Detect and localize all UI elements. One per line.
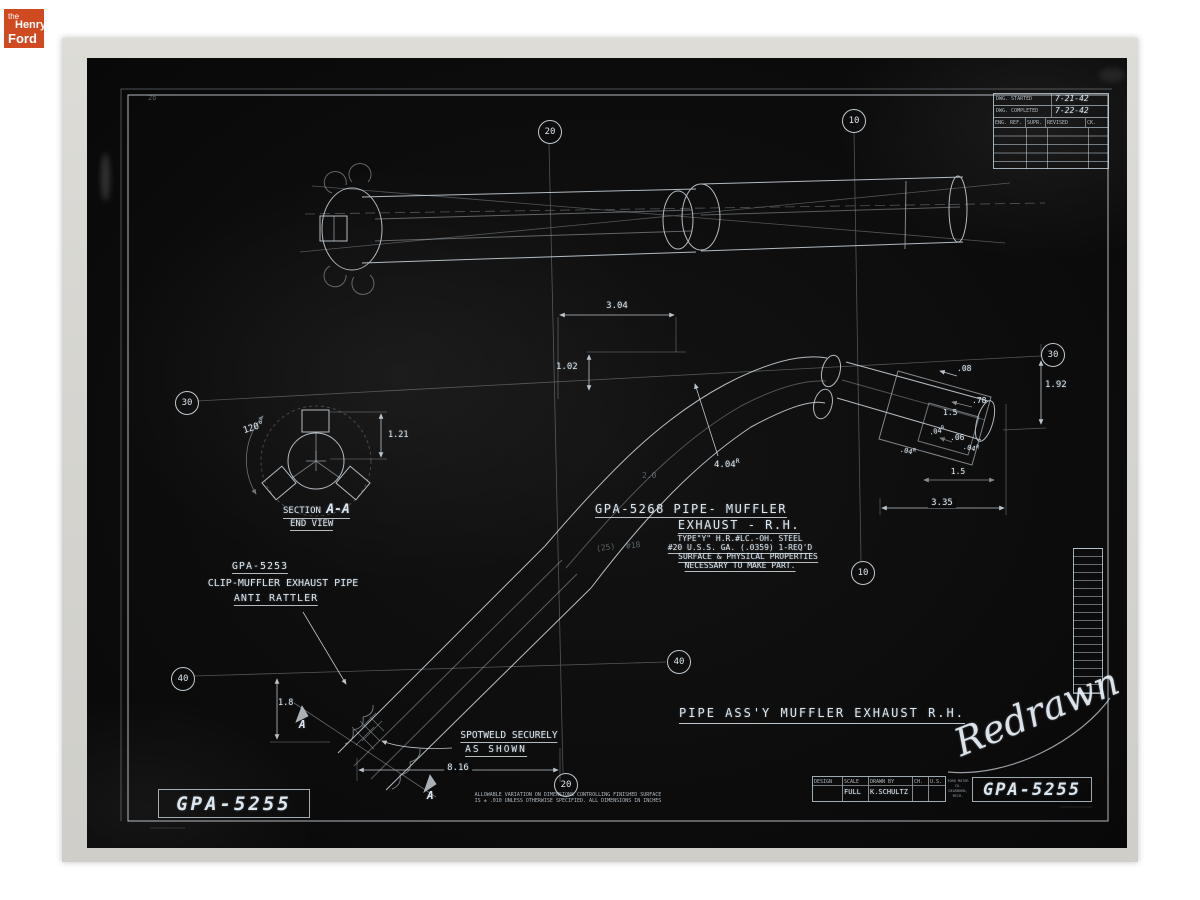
col-revised: REVISED — [1046, 118, 1086, 127]
col-supr: SUPR. — [1026, 118, 1046, 127]
revision-empty-rows — [994, 128, 1108, 169]
dim-8-16: 8.16 — [444, 763, 472, 773]
title-block-part-number: GPA-5255 — [983, 780, 1081, 800]
dim-06: .06 — [950, 433, 964, 442]
part-number-note: GPA-5268 PIPE- MUFFLER — [595, 502, 787, 518]
dwg-started-value: 7-21-42 — [1052, 94, 1108, 105]
grid-ref-40-left: 40 — [171, 667, 195, 691]
dim-1-5b: 1.5 — [951, 467, 965, 476]
end-view-label: END VIEW — [290, 519, 333, 531]
company-stamp: FORD MOTOR CO. DEARBORN, MICH. — [944, 779, 972, 799]
grid-ref-40-mid: 40 — [667, 650, 691, 674]
spec-line4: NECESSARY TO MAKE PART. — [685, 561, 796, 572]
spec-line1: TYPE"Y" H.R.#LC.-OH. STEEL — [677, 534, 802, 543]
dim-1-21: 1.21 — [388, 430, 408, 440]
revision-table: DWG. STARTED 7-21-42 DWG. COMPLETED 7-22… — [993, 93, 1109, 169]
dwg-completed-value: 7-22-42 — [1052, 106, 1108, 117]
clip-note-line2: CLIP-MUFFLER EXHAUST PIPE — [208, 578, 359, 589]
hdr-us: U.S. — [929, 777, 945, 786]
company-line1: FORD MOTOR CO. — [944, 779, 972, 789]
section-marker-a2: A — [427, 789, 434, 802]
val-design — [813, 786, 842, 788]
title-block-part-number-box: GPA-5255 — [972, 777, 1092, 802]
corner-pencil-mark: 2b — [148, 94, 156, 102]
dwg-started-label: DWG. STARTED — [994, 94, 1052, 105]
spotweld-line2: AS SHOWN — [465, 744, 527, 757]
corner-part-number-box: GPA-5255 — [158, 789, 310, 818]
hdr-drawn-by: DRAWN BY — [869, 777, 912, 786]
logo-henry: Henry — [15, 20, 46, 31]
clip-note-line3: ANTI RATTLER — [234, 593, 318, 606]
dim-1-02: 1.02 — [556, 362, 578, 372]
logo-ford: Ford — [8, 32, 37, 45]
grid-ref-10-mid: 10 — [851, 561, 875, 585]
title-block-table: DESIGN SCALE FULL DRAWN BY K.SCHULTZ CH.… — [812, 776, 946, 802]
company-line2: DEARBORN, MICH. — [944, 789, 972, 799]
film-spot — [1099, 68, 1125, 82]
drawing-title: PIPE ASS'Y MUFFLER EXHAUST R.H. — [679, 706, 965, 724]
val-drawn-by: K.SCHULTZ — [869, 786, 912, 796]
part-note-line2: EXHAUST - R.H. — [678, 518, 800, 534]
film-scratch — [101, 153, 110, 201]
dim-3-35: 3.35 — [928, 498, 956, 508]
section-letters: A-A — [326, 502, 349, 517]
fine-print-line2: IS ± .010 UNLESS OTHERWISE SPECIFIED. AL… — [462, 798, 674, 804]
section-word: SECTION — [283, 506, 321, 516]
spotweld-line1: SPOTWELD SECURELY — [460, 730, 557, 743]
dim-1-92: 1.92 — [1045, 380, 1067, 390]
photographed-drawing-page: the Henry Ford — [0, 0, 1200, 900]
dim-1-5a: 1.5 — [943, 408, 957, 417]
col-eng-ref: ENG. REF. — [994, 118, 1026, 127]
hdr-scale: SCALE — [843, 777, 868, 786]
clip-part-number: GPA-5253 — [232, 561, 288, 574]
dwg-completed-label: DWG. COMPLETED — [994, 106, 1052, 117]
grid-ref-30-right: 30 — [1041, 343, 1065, 367]
dim-1-8: 1.8 — [278, 698, 293, 708]
grid-ref-20-top: 20 — [538, 120, 562, 144]
dim-3-04: 3.04 — [606, 301, 628, 311]
dim-4-04r: 4.04R — [714, 458, 739, 470]
col-ck: CK. — [1086, 118, 1108, 127]
fine-print: ALLOWABLE VARIATION ON DIMENSIONS CONTRO… — [462, 792, 674, 804]
dim-04a-sup: R — [941, 425, 945, 431]
grid-ref-30-left: 30 — [175, 391, 199, 415]
section-title: SECTION A-A — [283, 502, 350, 519]
section-marker-a1: A — [299, 718, 306, 731]
hdr-ch: CH. — [913, 777, 928, 786]
dim-4-04-sup: R — [736, 458, 740, 465]
val-scale: FULL — [843, 786, 868, 796]
henry-ford-logo[interactable]: the Henry Ford — [4, 9, 44, 48]
dim-08: .08 — [957, 364, 971, 373]
hdr-design: DESIGN — [813, 777, 842, 786]
dim-78: .78 — [972, 396, 986, 405]
faint-2-0: 2.0 — [642, 471, 656, 480]
dim-4-04-val: 4.04 — [714, 460, 736, 470]
grid-ref-10-top: 10 — [842, 109, 866, 133]
corner-part-number: GPA-5255 — [176, 793, 292, 815]
